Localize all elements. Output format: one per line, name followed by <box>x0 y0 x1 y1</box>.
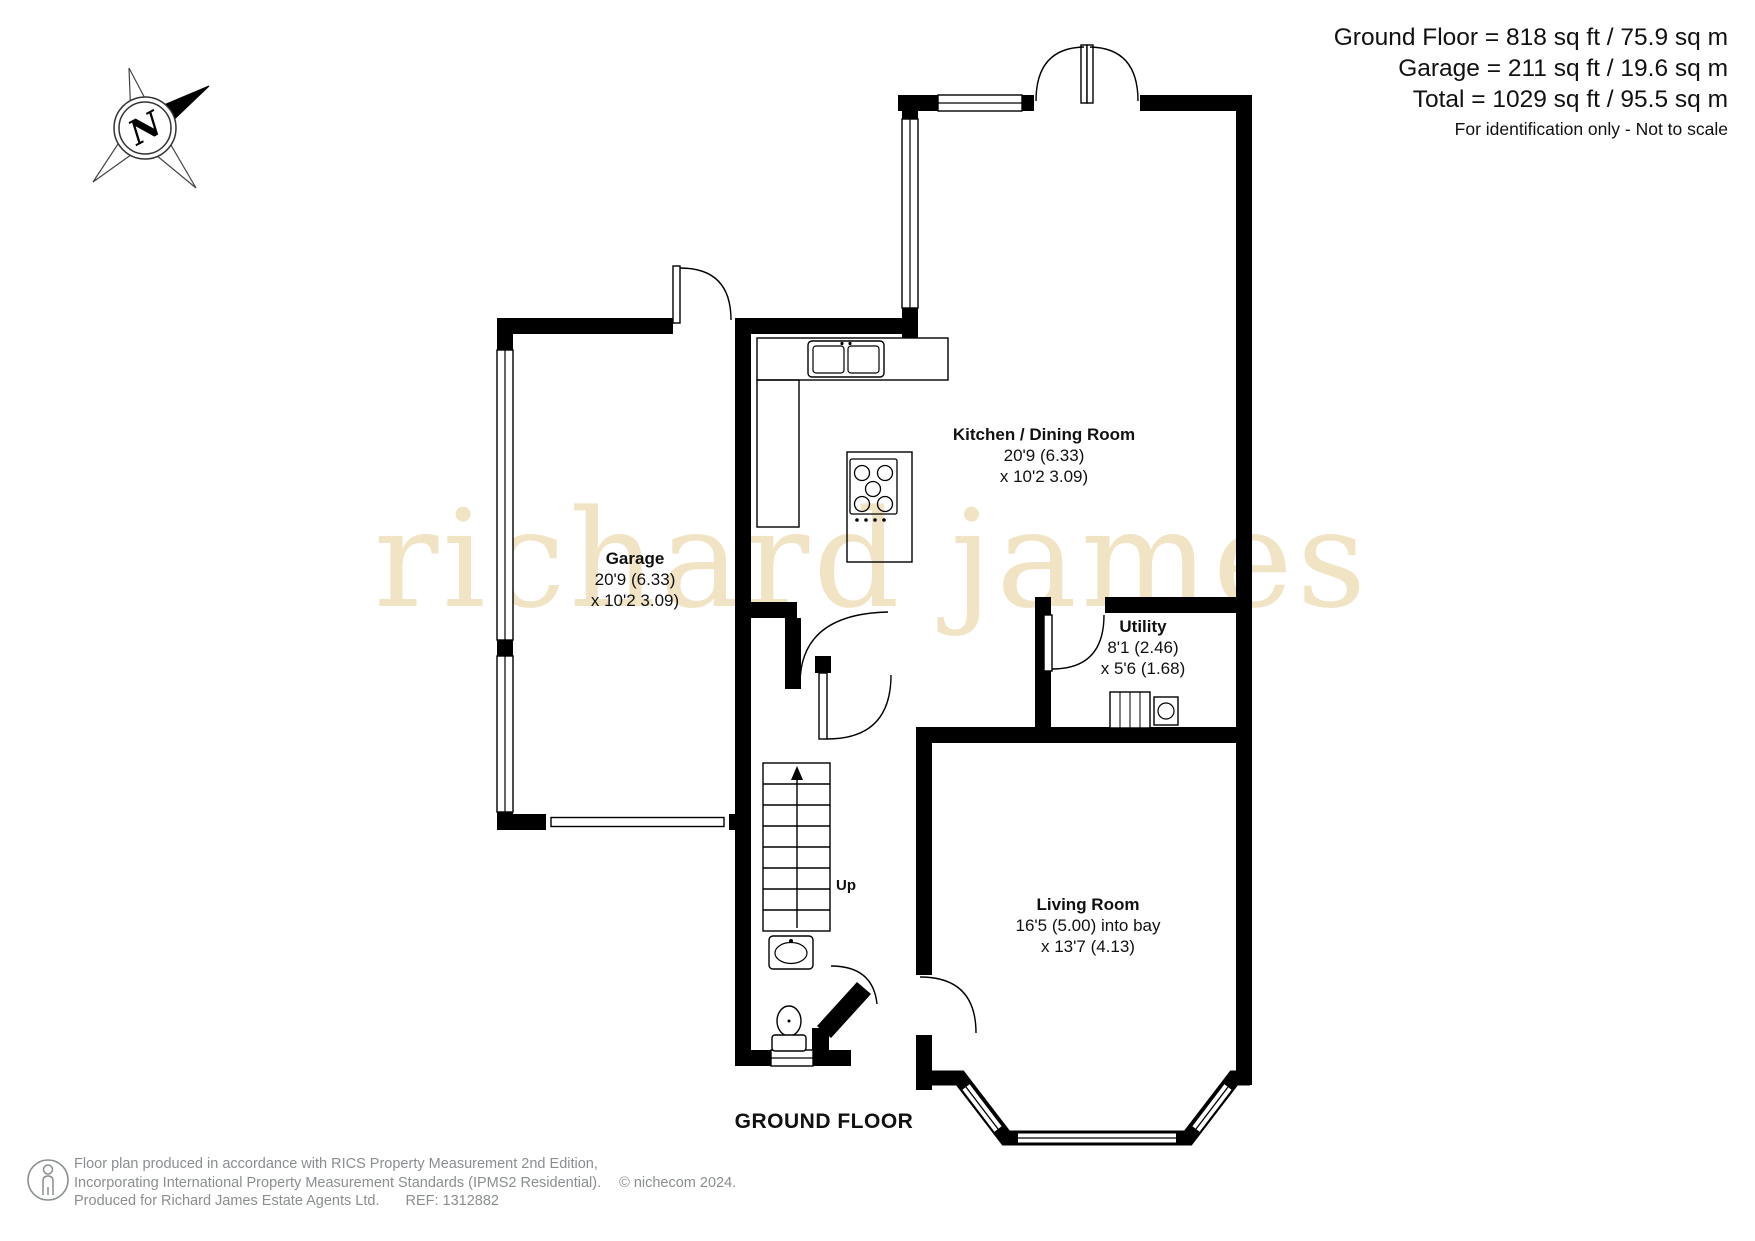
hall-front-wall <box>740 318 918 334</box>
floorplan-page: richard james <box>0 0 1755 1241</box>
toilet-icon <box>772 1006 806 1051</box>
kitchen-dim1: 20'9 (6.33) <box>953 445 1135 466</box>
french-door-leaf-right <box>1087 45 1093 103</box>
inner-door-leaf <box>819 673 827 739</box>
person-icon <box>26 1157 70 1205</box>
living-left-wall-upper <box>916 727 932 975</box>
hall-door-arc <box>800 612 888 684</box>
hall-stub-wall-v <box>785 618 801 689</box>
area-line-ground: Ground Floor = 818 sq ft / 75.9 sq m <box>1334 22 1728 53</box>
living-room-dim2: x 13'7 (4.13) <box>1015 936 1160 957</box>
inner-door-arc <box>827 675 891 739</box>
area-line-total: Total = 1029 sq ft / 95.5 sq m <box>1334 84 1728 115</box>
front-door-leaf <box>673 266 680 323</box>
utility-dim2: x 5'6 (1.68) <box>1101 658 1186 679</box>
kitchen-counter-return <box>757 380 799 527</box>
footer-line-2: Incorporating International Property Mea… <box>74 1175 601 1191</box>
stairs <box>763 763 830 931</box>
footer-line-1: Floor plan produced in accordance with R… <box>74 1155 736 1174</box>
footer-line-3: Produced for Richard James Estate Agents… <box>74 1193 379 1209</box>
utility-door-leaf <box>1044 615 1052 671</box>
living-top-wall <box>916 727 1252 743</box>
area-summary: Ground Floor = 818 sq ft / 75.9 sq m Gar… <box>1334 22 1728 140</box>
utility-top-wall <box>1105 597 1252 613</box>
utility-label: Utility 8'1 (2.46) x 5'6 (1.68) <box>1101 616 1186 679</box>
footer-disclaimer: Floor plan produced in accordance with R… <box>74 1155 736 1211</box>
garage-dim2: x 10'2 3.09) <box>591 590 679 611</box>
footer-copyright: © nichecom 2024. <box>619 1175 736 1191</box>
kitchen-name: Kitchen / Dining Room <box>953 424 1135 445</box>
garage-dim1: 20'9 (6.33) <box>591 569 679 590</box>
hall-stub-wall-h <box>751 602 797 618</box>
kitchen-label: Kitchen / Dining Room 20'9 (6.33) x 10'2… <box>953 424 1135 487</box>
french-door-leaf-left <box>1081 45 1087 103</box>
front-door-arc <box>680 268 731 320</box>
basin-icon <box>769 936 813 969</box>
living-room-label: Living Room 16'5 (5.00) into bay x 13'7 … <box>1015 894 1160 957</box>
living-door-arc <box>920 977 976 1033</box>
hob-icon <box>850 459 897 522</box>
garage-label: Garage 20'9 (6.33) x 10'2 3.09) <box>591 548 679 611</box>
footer-ref: REF: 1312882 <box>405 1193 499 1209</box>
kitchen-dim2: x 10'2 3.09) <box>953 466 1135 487</box>
kitchen-top-pier <box>1022 95 1034 111</box>
french-door-arc-left <box>1036 47 1084 101</box>
garage-name: Garage <box>591 548 679 569</box>
living-room-dim1: 16'5 (5.00) into bay <box>1015 915 1160 936</box>
house-right-wall <box>1236 95 1252 1085</box>
utility-name: Utility <box>1101 616 1186 637</box>
french-door-arc-right <box>1090 47 1138 101</box>
scale-disclaimer: For identification only - Not to scale <box>1334 118 1728 140</box>
bay-window <box>918 1078 1250 1138</box>
hall-left-wall <box>735 318 751 1066</box>
stairs-up-label: Up <box>836 877 856 894</box>
sink-icon <box>808 341 884 377</box>
compass-rose-icon: N <box>93 68 209 188</box>
windows <box>497 95 1022 1066</box>
floor-plan-drawing: N <box>0 0 1755 1241</box>
wc-diagonal-wall <box>817 982 871 1038</box>
garage-door <box>546 814 729 830</box>
area-line-garage: Garage = 211 sq ft / 19.6 sq m <box>1334 53 1728 84</box>
garage-top-wall <box>497 318 673 334</box>
hall-stub-wall-b <box>815 656 831 673</box>
washer-icon <box>1110 692 1178 728</box>
living-room-name: Living Room <box>1015 894 1160 915</box>
kitchen-top-right-wall <box>1140 95 1252 111</box>
stairs-up-arrow-icon <box>791 766 803 780</box>
utility-door-arc <box>1052 615 1104 669</box>
utility-dim1: 8'1 (2.46) <box>1101 637 1186 658</box>
floor-title: GROUND FLOOR <box>735 1110 914 1134</box>
